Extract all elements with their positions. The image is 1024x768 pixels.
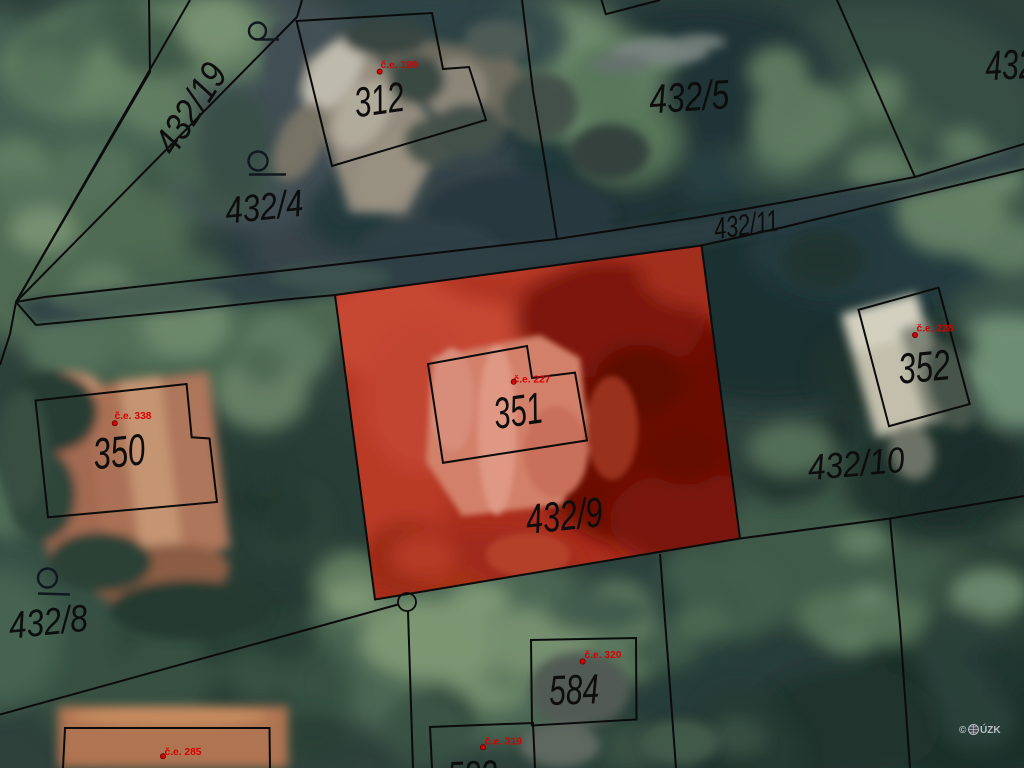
svg-text:350: 350 (91, 425, 148, 479)
svg-text:432/9: 432/9 (523, 488, 604, 543)
svg-text:č.e. 338: č.e. 338 (115, 411, 152, 422)
svg-text:432/8: 432/8 (7, 598, 90, 648)
svg-text:ÚZK: ÚZK (980, 723, 1001, 736)
svg-text:č.e. 285: č.e. 285 (165, 747, 202, 758)
svg-text:©: © (959, 725, 967, 736)
svg-text:č.e. 199: č.e. 199 (381, 60, 418, 71)
svg-text:351: 351 (491, 384, 546, 439)
svg-text:432/5: 432/5 (648, 71, 731, 122)
svg-text:312: 312 (351, 73, 407, 127)
svg-text:č.e. 319: č.e. 319 (485, 737, 522, 748)
svg-text:č.e. 227: č.e. 227 (514, 375, 551, 386)
svg-text:č.e. 320: č.e. 320 (585, 650, 622, 661)
svg-text:352: 352 (896, 341, 952, 393)
svg-text:432/4: 432/4 (223, 183, 305, 233)
svg-text:432/10: 432/10 (806, 439, 906, 488)
svg-text:584: 584 (548, 665, 600, 714)
svg-text:583: 583 (446, 751, 498, 768)
svg-text:432: 432 (984, 40, 1024, 90)
svg-text:č.e. 228: č.e. 228 (917, 324, 954, 335)
